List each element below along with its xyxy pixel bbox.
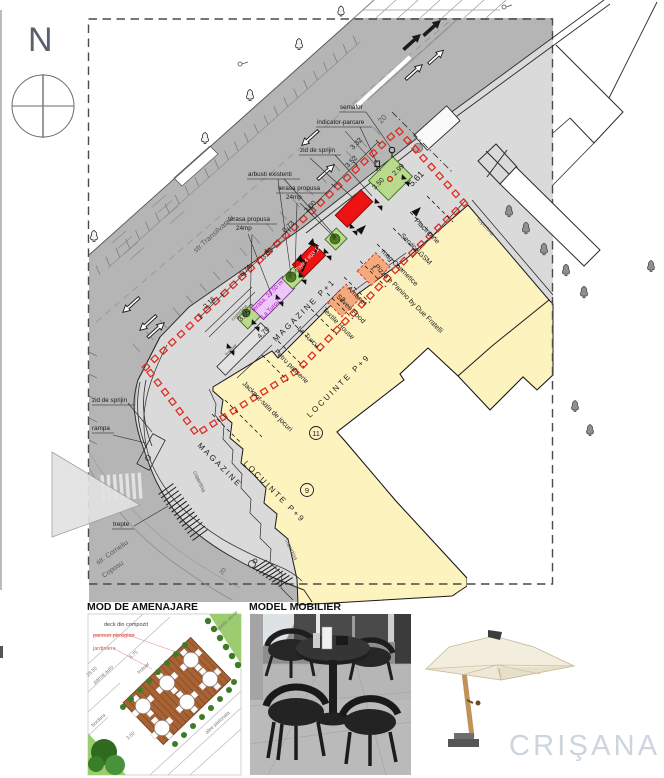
svg-text:arbusti existenti: arbusti existenti — [248, 171, 292, 178]
svg-text:panouri plexiglas: panouri plexiglas — [93, 633, 135, 639]
svg-text:zid de sprijin: zid de sprijin — [92, 397, 127, 404]
svg-text:zid de sprijin: zid de sprijin — [300, 147, 335, 154]
svg-text:semafor: semafor — [340, 104, 363, 111]
svg-text:deck din compozit: deck din compozit — [104, 622, 148, 628]
svg-text:N: N — [28, 21, 53, 59]
svg-text:9: 9 — [305, 486, 309, 495]
svg-text:indicator-parcare: indicator-parcare — [317, 119, 365, 126]
svg-text:CRIŞANA: CRIŞANA — [509, 730, 660, 762]
svg-text:11: 11 — [312, 429, 320, 438]
svg-text:MODEL MOBILIER: MODEL MOBILIER — [249, 601, 341, 613]
svg-text:rampa: rampa — [92, 425, 110, 432]
svg-text:jardiniere: jardiniere — [92, 646, 116, 652]
svg-text:MOD DE AMENAJARE: MOD DE AMENAJARE — [87, 601, 198, 613]
svg-text:24mp: 24mp — [286, 194, 302, 201]
svg-text:trepte: trepte — [113, 521, 130, 528]
svg-text:24mp: 24mp — [236, 225, 252, 232]
svg-text:terasa propusa: terasa propusa — [278, 185, 321, 192]
